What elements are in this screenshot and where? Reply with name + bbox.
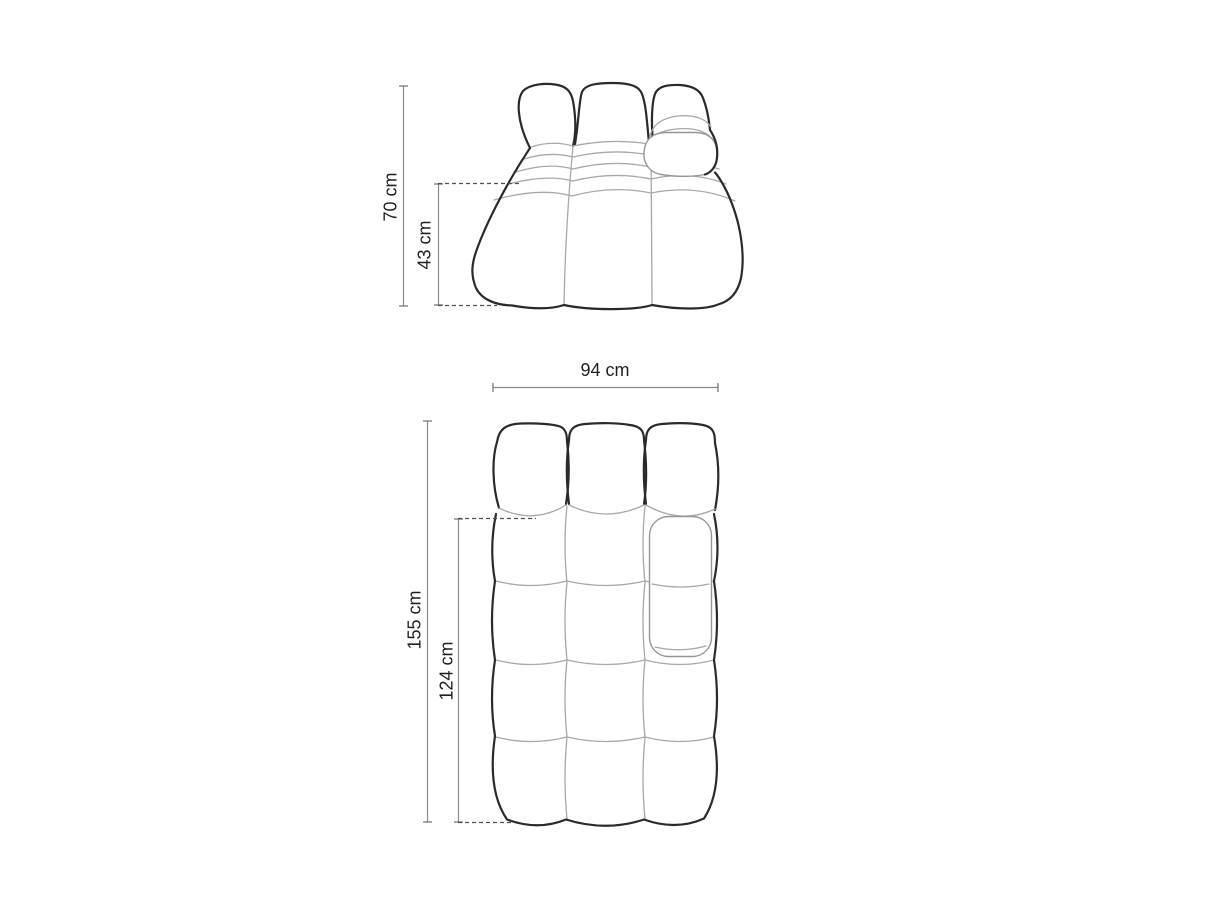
back-cushion-middle [575,83,649,144]
plan-cushion-scallop [499,505,566,516]
sofa-dimension-diagram: 70 cm 43 cm [0,0,1214,911]
plan-grid-vertical [643,506,645,819]
plan-back-cushion-left [493,423,568,508]
dimension-label-total-height: 70 cm [380,172,400,221]
dimension-label-seat-height: 43 cm [414,220,434,269]
dimension-total-depth: 155 cm [404,421,432,822]
tufting-line [494,192,572,200]
tufting-line [516,166,573,172]
front-view-drawing: 70 cm 43 cm [380,83,742,309]
dimension-label-seat-depth: 124 cm [436,641,456,700]
dimension-label-total-depth: 155 cm [404,590,424,649]
plan-cushion-scallop [569,505,644,514]
plan-cushion-scallop [646,505,715,516]
dimension-total-height: 70 cm [380,86,408,306]
tufting-line [651,190,735,201]
dimension-width: 94 cm [493,360,718,392]
tufting-line [524,154,573,159]
plan-back-cushion-middle [567,423,647,504]
seat-divider-line [564,146,573,304]
tufting-line [573,152,650,157]
dimension-seat-depth: 124 cm [436,519,536,823]
back-cushion-left [519,84,576,148]
tufting-line [573,141,649,146]
plan-grid-vertical [565,506,567,819]
plan-grid-horizontal [496,737,714,742]
plan-back-cushion-right [644,423,719,510]
top-view-drawing: 94 cm 155 cm 124 cm [404,360,718,826]
tufting-line [573,163,651,169]
dimension-label-width: 94 cm [580,360,629,380]
plan-grid-horizontal [496,660,714,665]
armrest-cushion [644,133,717,177]
dimension-seat-height: 43 cm [414,184,521,306]
tufting-line [531,143,573,147]
tufting-line [573,175,651,181]
diagram-canvas: 70 cm 43 cm [0,0,1214,911]
tufting-line [572,190,651,196]
